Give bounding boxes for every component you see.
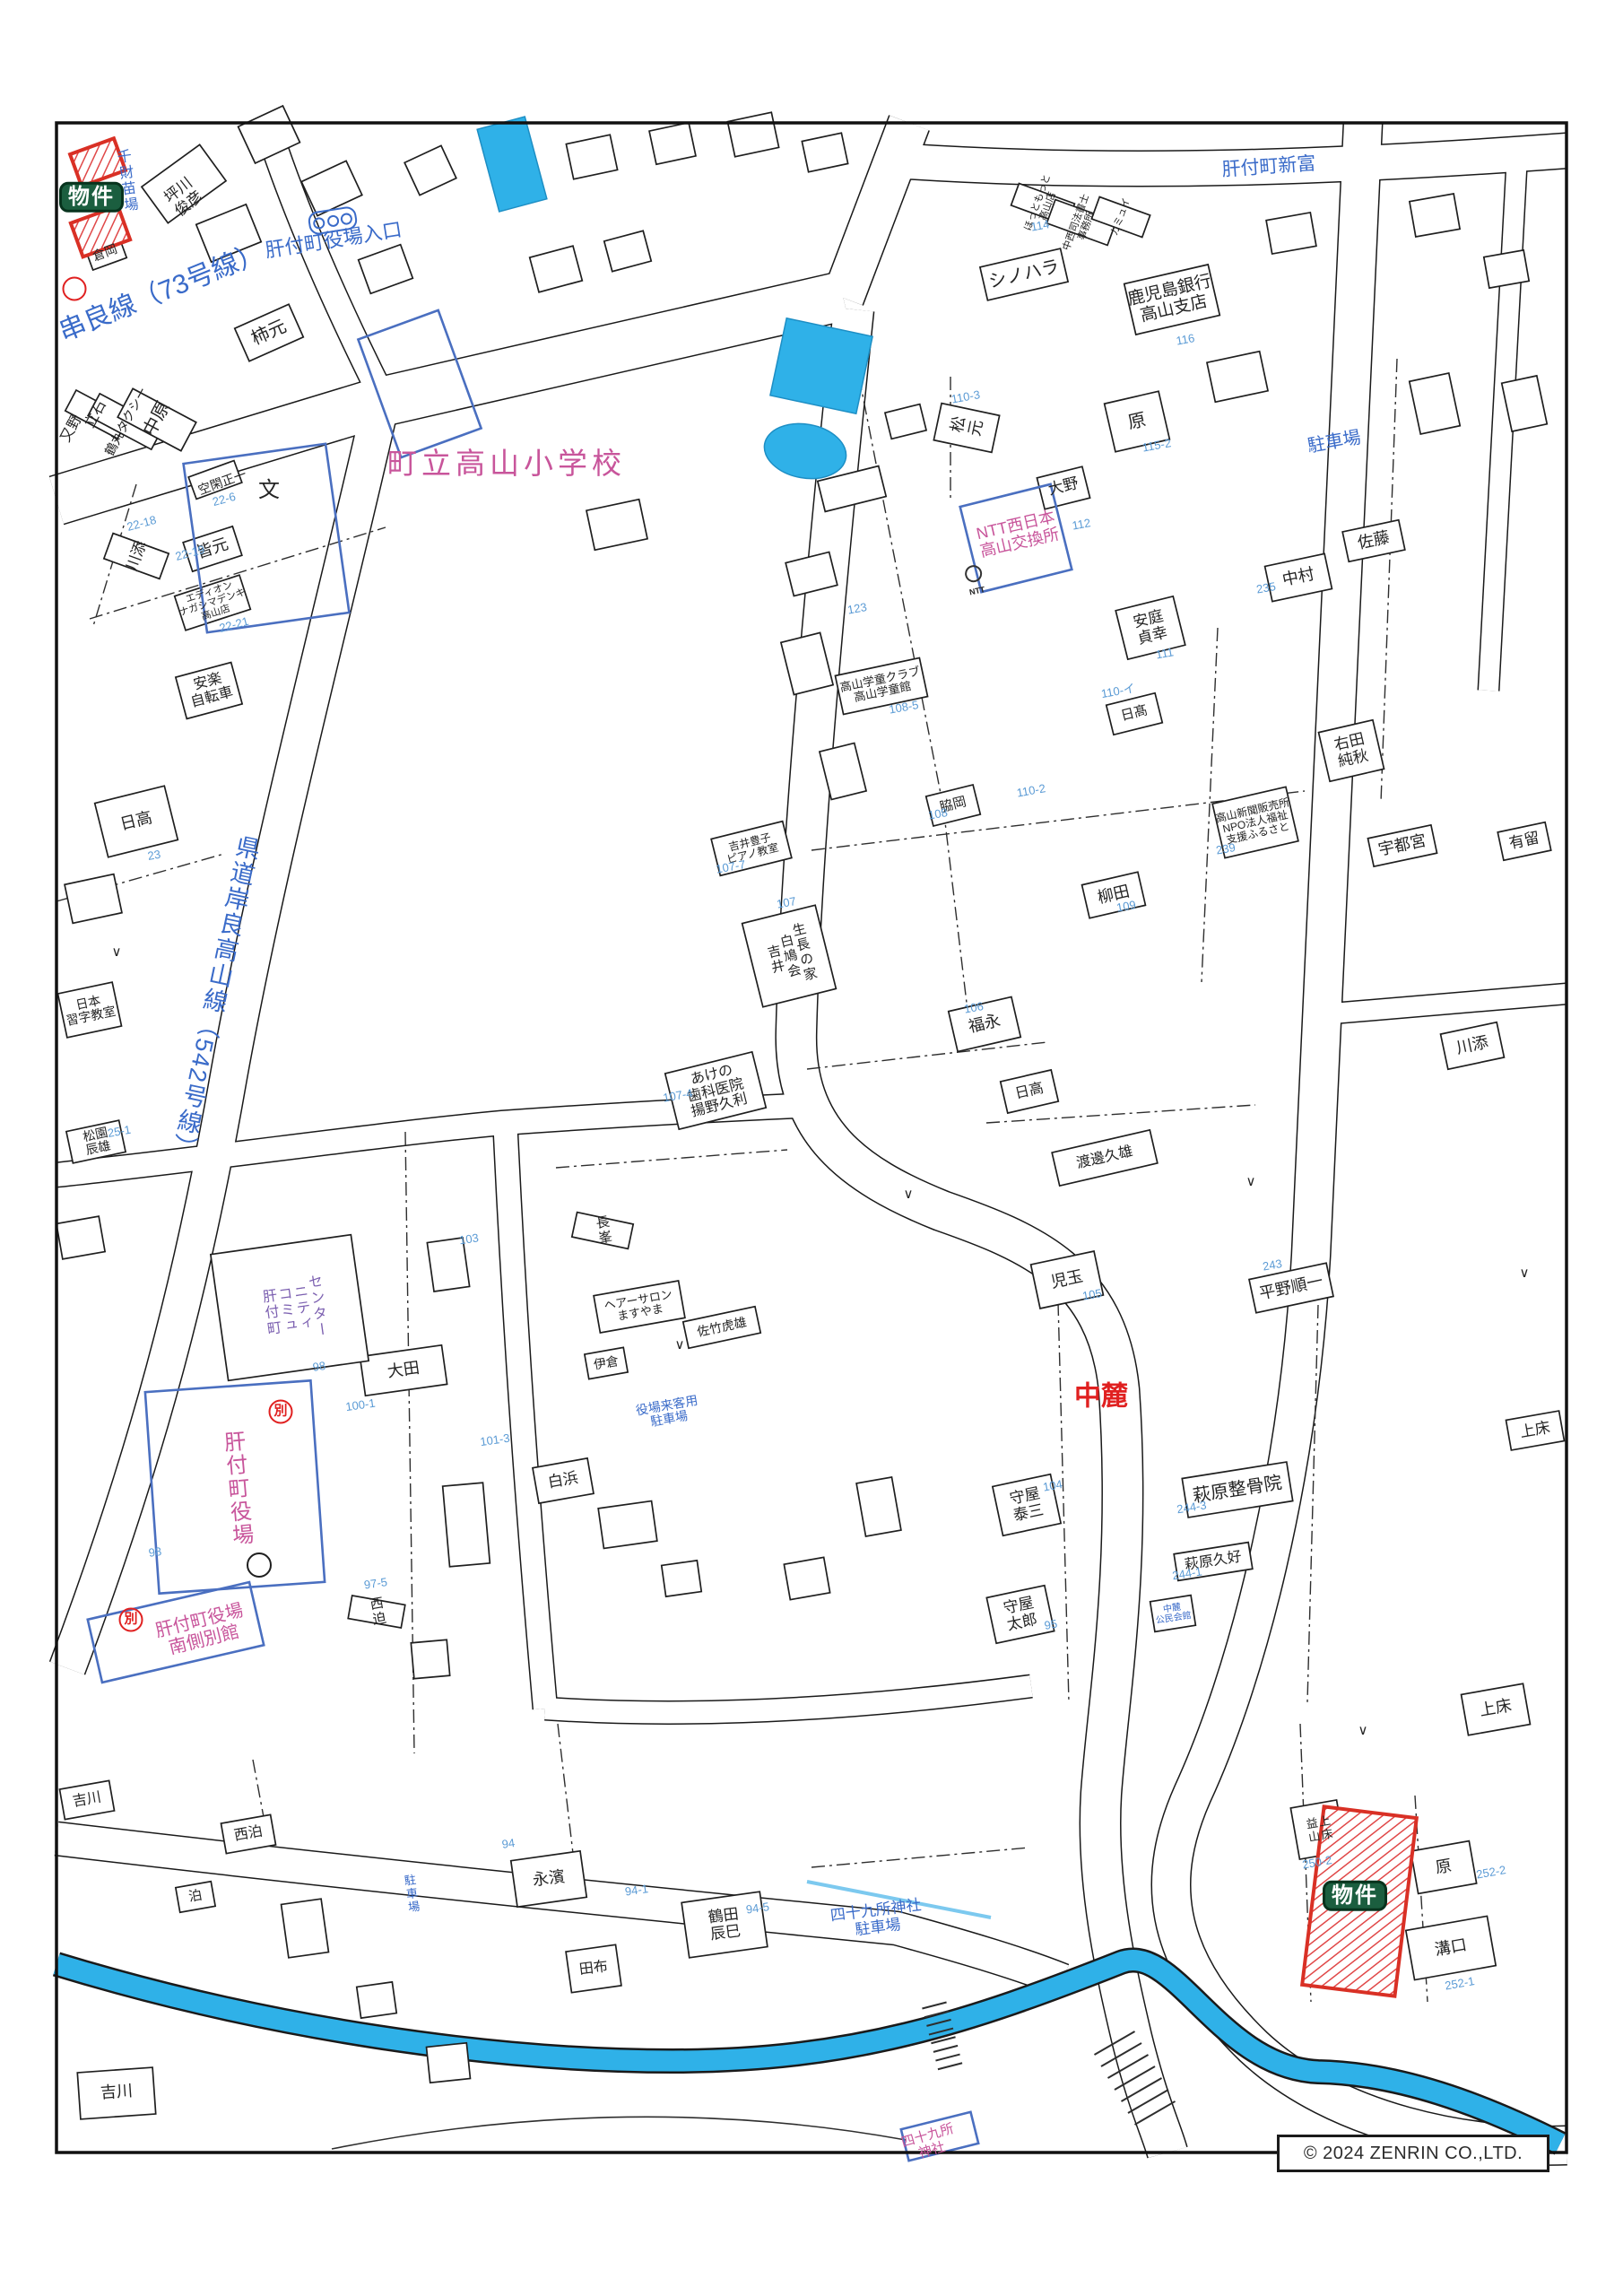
map-basemap (0, 0, 1623, 2296)
building (511, 1851, 586, 1907)
building (1484, 250, 1529, 288)
building (176, 1882, 215, 1913)
building (1266, 213, 1316, 254)
building (649, 123, 696, 165)
building (598, 1501, 657, 1549)
building (357, 1982, 396, 2018)
highlighted-property-parcel (1302, 1806, 1417, 1996)
building (427, 1238, 469, 1291)
building (681, 1892, 768, 1958)
building (1410, 1841, 1476, 1894)
building (1410, 194, 1460, 237)
building (211, 1235, 369, 1381)
building (566, 1944, 621, 1992)
copyright-box: © 2024 ZENRIN CO.,LTD. (1277, 2135, 1549, 2172)
building (56, 1216, 105, 1259)
building (784, 1557, 829, 1599)
building (662, 1561, 701, 1596)
scanned-map-page: 202406肝属郡肝付町（内之浦・高山） [肝付町 58図 E-4 ] 利用者：… (0, 0, 1623, 2296)
building (77, 2067, 155, 2119)
road-surface (907, 151, 1567, 169)
building (282, 1899, 329, 1958)
building (427, 2043, 471, 2083)
building (443, 1483, 490, 1567)
building (1150, 1596, 1196, 1632)
building (411, 1639, 449, 1678)
